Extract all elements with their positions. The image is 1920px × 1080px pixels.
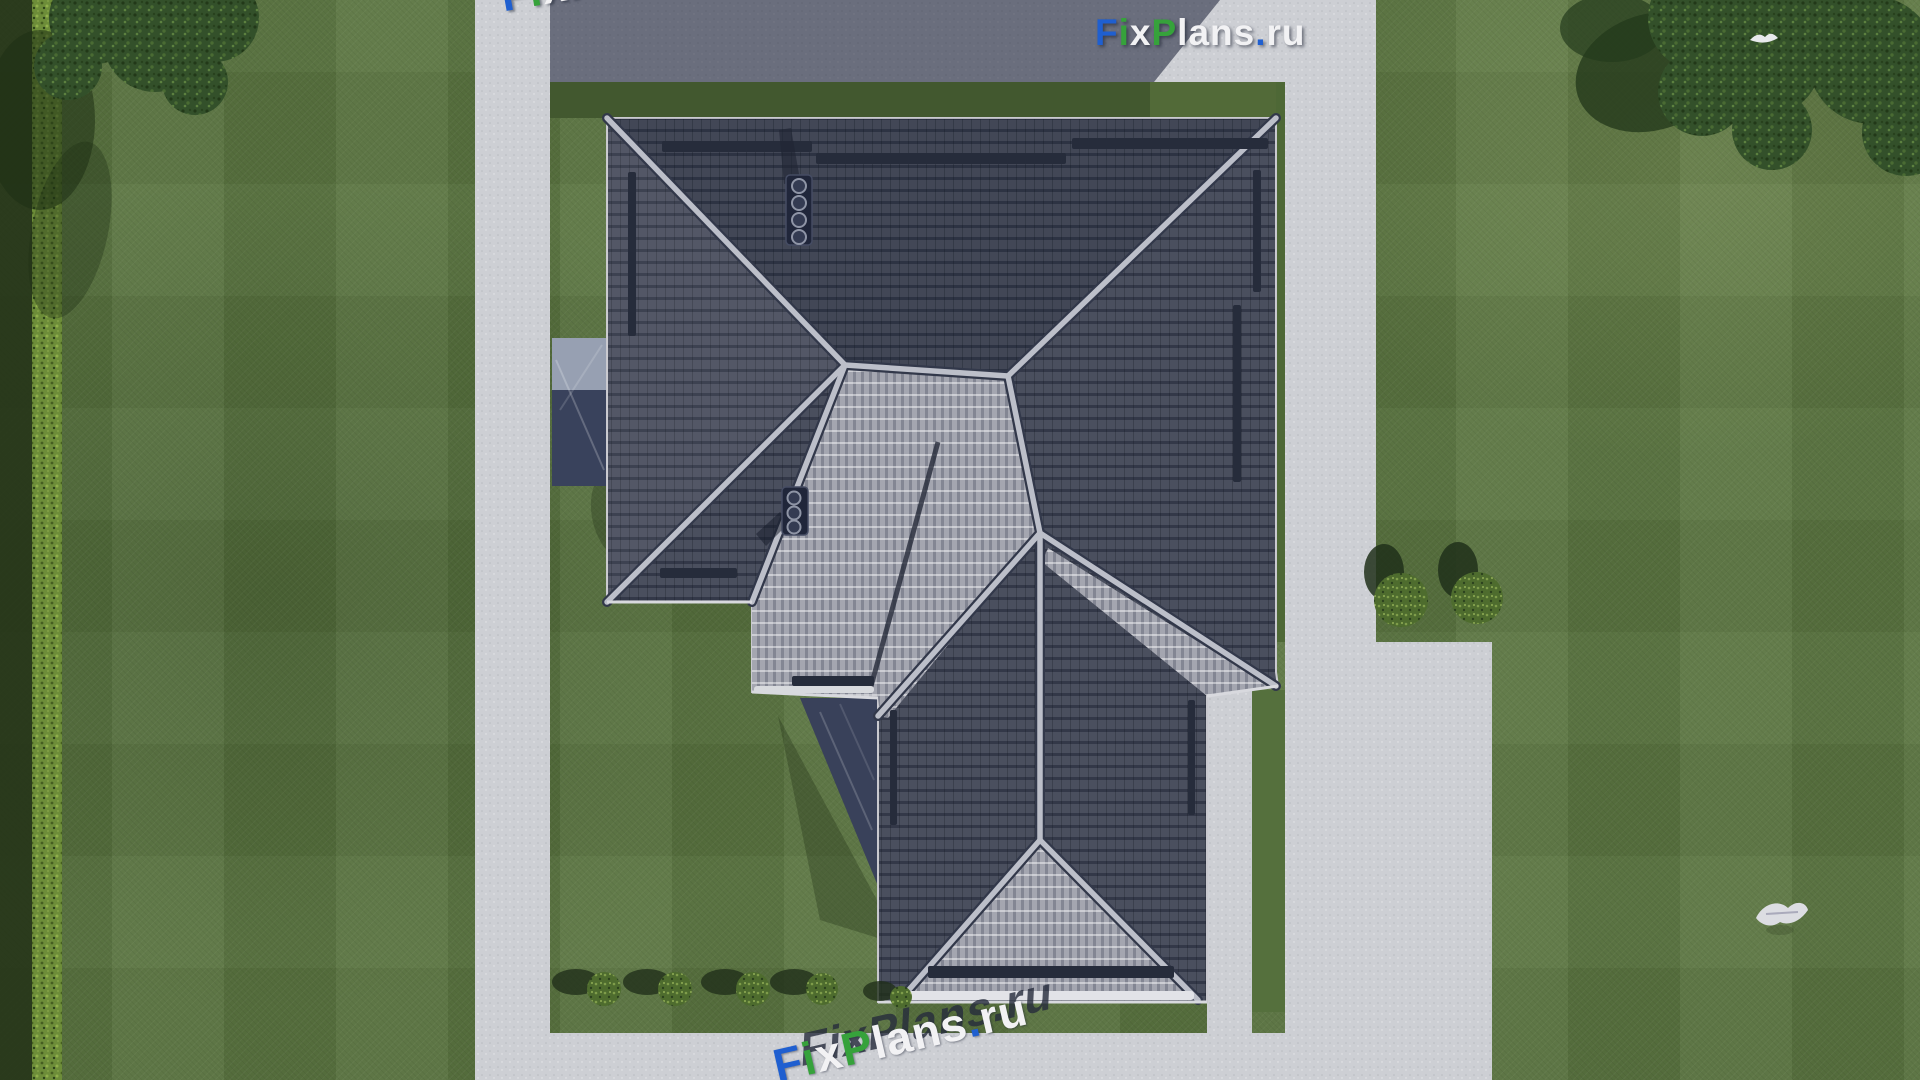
logo-letter: a — [1188, 12, 1210, 53]
bushes-south-row — [552, 969, 912, 1008]
logo-letter: u — [1282, 12, 1306, 53]
roof — [607, 118, 1278, 1002]
logo-letter: x — [1130, 12, 1152, 53]
logo-letter: . — [1255, 12, 1266, 53]
logo-letter: i — [1119, 12, 1130, 53]
logo-letter: r — [1266, 12, 1281, 53]
tree-cluster-top-right — [1560, 0, 1920, 176]
aerial-scene: FixPlans.ru FixPlans.ru FixPlans.ru FixP… — [0, 0, 1920, 1080]
logo-letter: P — [1151, 12, 1177, 53]
logo-letter: F — [1095, 12, 1119, 53]
logo-letter: n — [1210, 12, 1234, 53]
shaded-grass-strip-light-end — [1150, 82, 1278, 118]
terrace-glass-triangle — [778, 698, 878, 938]
bird-icon-lawn — [1756, 903, 1808, 935]
path-bottom — [550, 1033, 1492, 1080]
bushes-east — [1364, 542, 1503, 627]
logo-letter: s — [1234, 12, 1256, 53]
logo-letter: l — [1177, 12, 1188, 53]
path-house-east-strip — [1207, 690, 1252, 1035]
path-right-vertical — [1285, 0, 1376, 642]
gutter-bar-middle — [754, 686, 874, 693]
tree-cluster-top-left — [0, 0, 259, 326]
grass-sliver-east — [1276, 82, 1285, 642]
site-plan-render — [0, 0, 1920, 1080]
site-logo: FixPlans.ru — [1095, 12, 1306, 54]
driveway — [1285, 642, 1492, 1080]
path-left-vertical — [475, 0, 550, 1080]
grass-sliver-driveway — [1252, 690, 1285, 1012]
